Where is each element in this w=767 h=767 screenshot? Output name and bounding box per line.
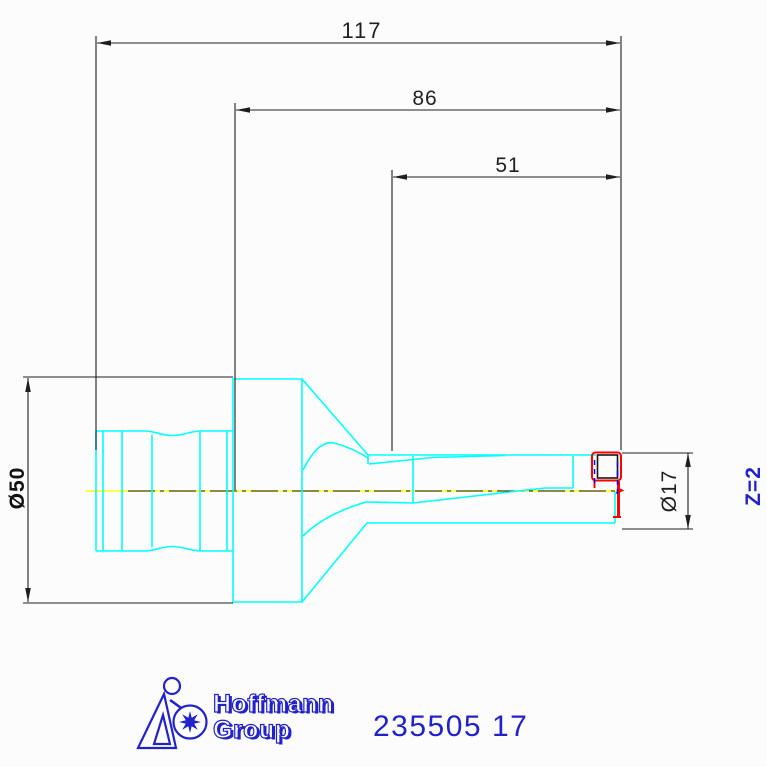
- shaft: [366, 455, 615, 523]
- insert-pocket: [598, 455, 618, 478]
- logo-text-line2: Group: [213, 716, 291, 744]
- dimension-text-86: 86: [412, 87, 437, 110]
- dimension-text-51: 51: [495, 154, 520, 177]
- dimension-text-117: 117: [341, 18, 382, 43]
- teeth-count-note: Z=2: [742, 466, 765, 506]
- dimension-text-d50: Ø50: [6, 467, 29, 510]
- dimension-lines: [23, 36, 693, 603]
- hoffmann-logo: Hoffmann Hoffmann Group Group: [138, 678, 336, 748]
- insert-outline-red: [592, 453, 621, 481]
- drawing-canvas: 117 86 51 Ø50 Ø17 Z=2 Hoffmann Hoffmann …: [0, 0, 767, 767]
- logo-figure-icon: [138, 678, 207, 748]
- dimension-text-d17: Ø17: [658, 470, 681, 513]
- article-number: 235505 17: [373, 710, 528, 743]
- logo-wordmark: Hoffmann Hoffmann Group Group: [213, 690, 336, 746]
- dimension-arrowheads: [25, 40, 691, 602]
- technical-drawing-sheet: 117 86 51 Ø50 Ø17 Z=2 Hoffmann Hoffmann …: [0, 0, 767, 767]
- logo-text-line1: Hoffmann: [213, 690, 334, 718]
- insert-detail: [592, 453, 623, 518]
